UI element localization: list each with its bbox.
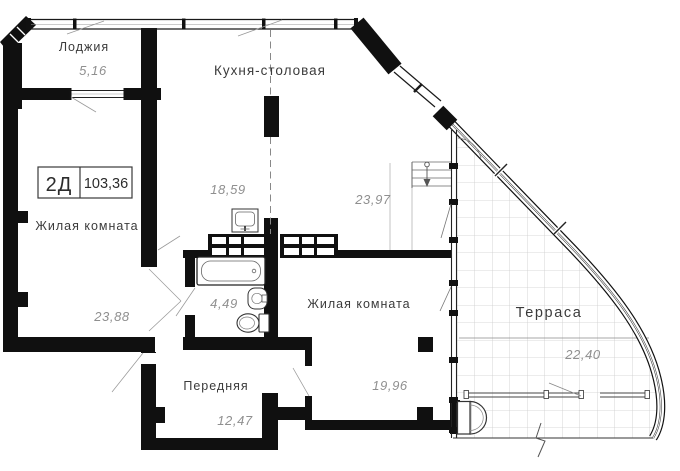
wall-living1-right [141, 28, 157, 267]
column-kitchen [264, 96, 279, 137]
wall-left [3, 98, 18, 352]
round-column [458, 402, 487, 435]
wall-pilaster-1 [18, 211, 28, 223]
toilet [237, 314, 269, 332]
wall-hall-left [141, 352, 156, 450]
terrace-steps [390, 162, 451, 250]
toilet-tank [259, 314, 269, 332]
bathroom-door-swing [176, 288, 195, 316]
area-kitchen-zone: 18,59 [210, 182, 246, 197]
room-label-kitchen-dining: Кухня-столовая [214, 63, 326, 78]
wall-living2-top [330, 250, 452, 258]
floor-plan: 2Д 103,36 Лоджия 5,16 Кухня-столовая 18,… [0, 0, 680, 471]
terrace-door-swing-2 [440, 287, 451, 311]
wall-bathroom-left-bottom [185, 315, 195, 337]
wall-hall-pier [156, 407, 165, 423]
area-living2: 19,96 [372, 378, 408, 393]
wall-bathroom-bottom [183, 337, 312, 350]
wall-loggia-bottom-left [3, 88, 70, 100]
entrance-opening [141, 353, 156, 364]
washbasin [248, 288, 267, 309]
window-diagonal [394, 66, 441, 107]
area-terrace: 22,40 [564, 347, 601, 362]
area-loggia: 5,16 [79, 63, 107, 78]
wall-living2-door-bottom [305, 396, 312, 408]
washbasin-faucet [262, 295, 267, 302]
living1-door-swing-1 [149, 269, 181, 301]
entrance-leader [112, 353, 143, 392]
wall-diagonal-1 [357, 23, 395, 69]
toilet-bowl [237, 314, 259, 332]
step-arrow-origin [425, 162, 430, 167]
area-dining-zone: 23,97 [354, 192, 391, 207]
kitchen-sink [232, 209, 258, 232]
window-band-top [26, 18, 358, 30]
wall-hall-living2 [262, 407, 312, 420]
room-label-living1: Жилая комната [35, 219, 138, 233]
room-label-hallway: Передняя [183, 379, 248, 393]
terrace-floor [453, 130, 661, 438]
room-label-loggia: Лоджия [59, 40, 109, 54]
living2-door-swing [293, 368, 309, 396]
area-hallway: 12,47 [217, 413, 253, 428]
loggia-window [69, 88, 126, 100]
apartment-type: 2Д [46, 174, 73, 196]
wall-diagonal-2 [438, 111, 452, 125]
terrace-door-swing-1 [441, 204, 451, 238]
apartment-total-area: 103,36 [84, 176, 128, 192]
area-bathroom: 4,49 [210, 296, 238, 311]
room-label-terrace: Терраса [516, 305, 583, 321]
bathtub [197, 257, 265, 285]
apartment-title-box: 2Д 103,36 [38, 167, 132, 198]
wall-living2-pier [417, 407, 433, 427]
floor-plan-drawing: 2Д 103,36 Лоджия 5,16 Кухня-столовая 18,… [0, 0, 680, 471]
wall-bathroom-left-top [185, 256, 195, 287]
room-label-living2: Жилая комната [307, 297, 410, 311]
wall-living2-door-top [305, 348, 312, 366]
wall-hall-bottom [141, 438, 278, 450]
column-living2 [418, 337, 433, 352]
wall-living1-bottom [3, 337, 155, 352]
area-living1: 23,88 [93, 309, 130, 324]
wall-pilaster-2 [18, 292, 28, 307]
